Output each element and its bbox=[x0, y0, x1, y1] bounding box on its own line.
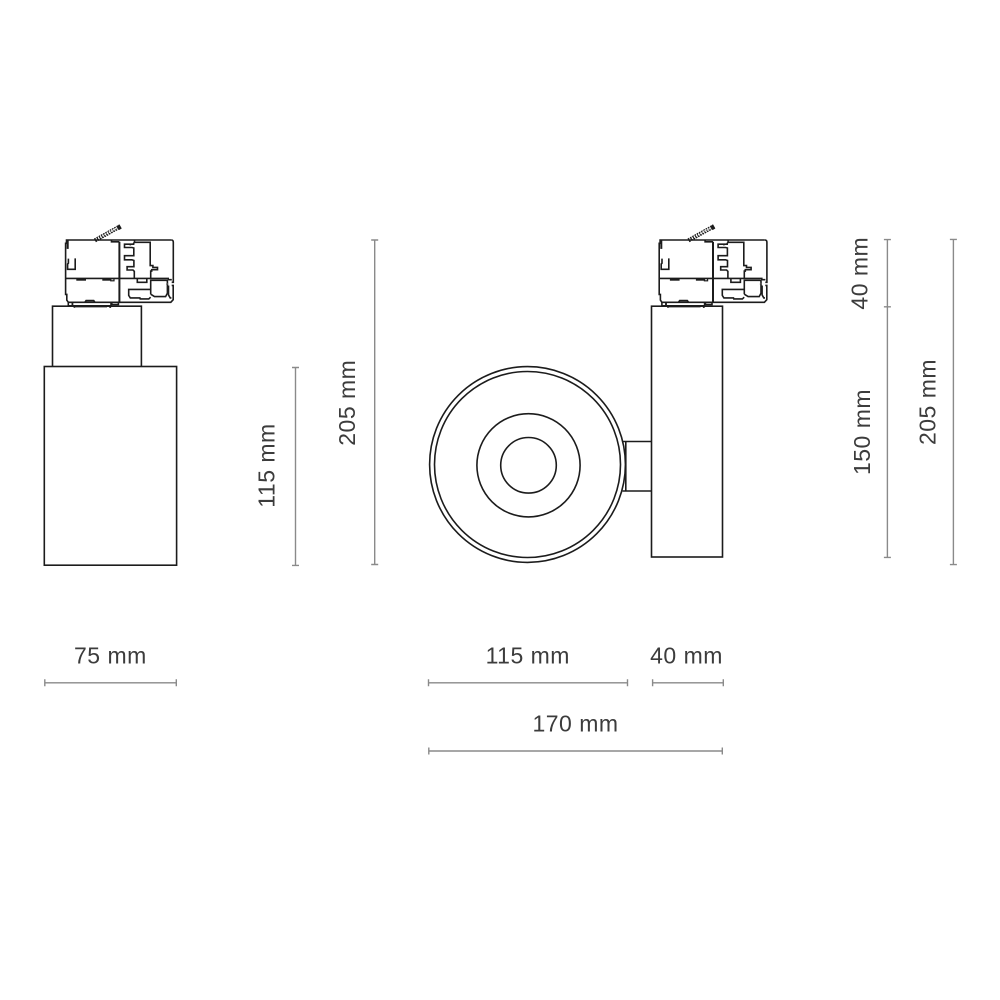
svg-text:115 mm: 115 mm bbox=[486, 643, 570, 669]
svg-text:150 mm: 150 mm bbox=[849, 389, 875, 475]
svg-text:205 mm: 205 mm bbox=[334, 360, 360, 446]
svg-text:205 mm: 205 mm bbox=[915, 359, 941, 445]
svg-text:75 mm: 75 mm bbox=[74, 643, 147, 669]
svg-text:170 mm: 170 mm bbox=[532, 711, 618, 737]
svg-text:40 mm: 40 mm bbox=[846, 237, 872, 310]
svg-text:40 mm: 40 mm bbox=[650, 643, 723, 669]
svg-text:115 mm: 115 mm bbox=[253, 423, 279, 507]
